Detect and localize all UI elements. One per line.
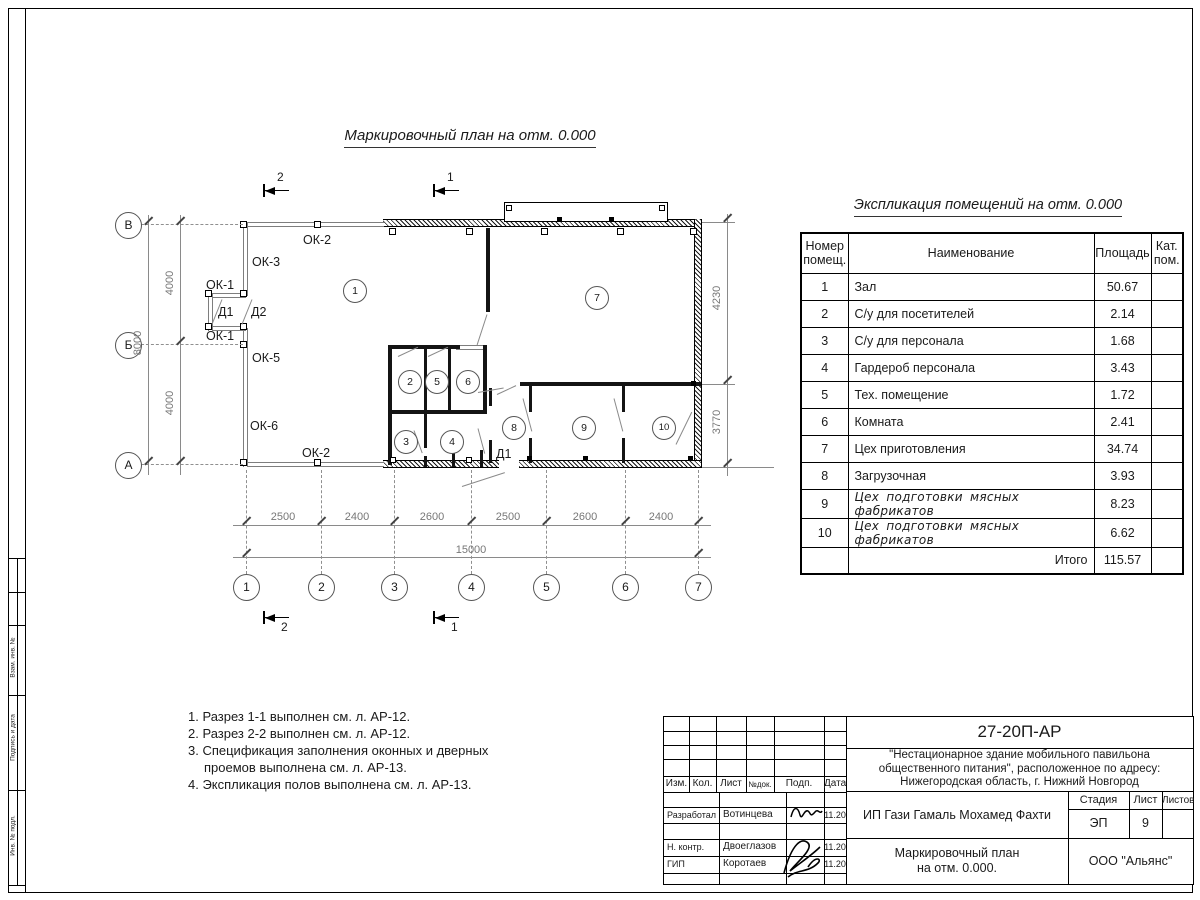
table-header-row: Номер помещ. Наименование Площадь Кат. п… (801, 233, 1183, 273)
room-num: 5 (801, 381, 848, 408)
room-cat (1151, 327, 1183, 354)
dimension-text: 2500 (478, 511, 538, 523)
notes: 1. Разрез 1-1 выполнен см. л. АР-12. 2. … (188, 708, 506, 793)
sheet-label: Лист (1129, 794, 1162, 806)
section-mark-1: 1 (433, 611, 473, 627)
tb-col-data: Дата (824, 778, 846, 789)
door-label: Д2 (251, 305, 266, 319)
room-area: 1.72 (1094, 381, 1151, 408)
room-area: 2.14 (1094, 300, 1151, 327)
room-name: Цех приготовления (848, 435, 1094, 462)
table-row: 1Зал50.67 (801, 273, 1183, 300)
window-label: ОК-6 (250, 419, 278, 433)
room-name: Зал (848, 273, 1094, 300)
extension-line (702, 467, 774, 468)
title-block: Изм. Кол. Лист №док. Подп. Дата Разработ… (663, 716, 1194, 885)
dimension-text: 2400 (327, 511, 387, 523)
stage-label: Стадия (1068, 794, 1129, 806)
partition (483, 345, 487, 412)
drawing-name: Маркировочный план на отм. 0.000. (846, 838, 1068, 884)
column-marker (389, 228, 396, 235)
platform-post (557, 217, 562, 221)
section-mark-1: 1 (433, 184, 473, 200)
room-area: 2.41 (1094, 408, 1151, 435)
section-arrow-icon (265, 187, 275, 195)
partition-room1-7 (486, 228, 490, 312)
glazed-wall-left (243, 222, 248, 296)
tb-name: Коротаев (723, 858, 766, 869)
room-num: 9 (801, 489, 848, 518)
grid-axis-line (141, 464, 243, 465)
room-name: Загрузочная (848, 462, 1094, 489)
room-number: 4 (440, 430, 464, 454)
dimension-text: 4000 (164, 381, 176, 425)
total-value: 115.57 (1094, 547, 1151, 574)
section-mark-2: 2 (263, 184, 303, 200)
dim-line (148, 215, 149, 475)
room-num: 1 (801, 273, 848, 300)
dimension-text: 4230 (711, 276, 723, 320)
room-cat (1151, 354, 1183, 381)
room-number: 9 (572, 416, 596, 440)
room-cat (1151, 381, 1183, 408)
side-stamp-line (8, 885, 25, 886)
room-num: 6 (801, 408, 848, 435)
section-mark-2: 2 (263, 611, 303, 627)
dim-line (180, 215, 181, 475)
table-title-text: Экспликация помещений на отм. 0.000 (854, 197, 1122, 217)
side-stamp-line (17, 558, 18, 885)
platform-post (609, 217, 614, 221)
frame-margin-line (25, 8, 26, 892)
window-label: ОК-1 (206, 329, 234, 343)
room-num: 2 (801, 300, 848, 327)
partition-stub (529, 386, 532, 412)
company-name: ООО "Альянс" (1068, 838, 1193, 884)
section-arrow-icon (435, 614, 445, 622)
total-label: Итого (848, 547, 1094, 574)
room-cat (1151, 518, 1183, 547)
column-marker (527, 456, 532, 461)
room-num: 10 (801, 518, 848, 547)
partition-rooms-8-10 (520, 382, 701, 386)
table-row: 7Цех приготовления34.74 (801, 435, 1183, 462)
note-line: 1. Разрез 1-1 выполнен см. л. АР-12. (188, 708, 506, 725)
room-cat (1151, 408, 1183, 435)
grid-column-bubble: 1 (233, 574, 260, 601)
dimension-text: 2400 (631, 511, 691, 523)
dimension-text: 3770 (711, 400, 723, 444)
room-cat (1151, 462, 1183, 489)
note-line: 4. Экспликация полов выполнена см. л. АР… (188, 776, 506, 793)
table-row: 5Тех. помещение1.72 (801, 381, 1183, 408)
column-marker (314, 459, 321, 466)
plan-title: Маркировочный план на отм. 0.000 (320, 127, 620, 144)
room-area: 6.62 (1094, 518, 1151, 547)
dimension-text: 2600 (555, 511, 615, 523)
dimension-text: 8000 (132, 321, 144, 365)
side-stamp-label: Подпись и дата (10, 706, 17, 770)
grid-row-bubble: А (115, 452, 142, 479)
table-row: 3С/у для персонала1.68 (801, 327, 1183, 354)
column-marker (583, 456, 588, 461)
signature-icon (778, 833, 828, 881)
project-description: "Нестационарное здание мобильного павиль… (848, 748, 1191, 791)
room-area: 3.43 (1094, 354, 1151, 381)
tb-role: Разработал (667, 810, 716, 820)
tb-col-ndok: №док. (746, 780, 774, 789)
door-label: Д1 (218, 305, 233, 319)
tb-col-kol: Кол. (689, 778, 716, 789)
col-header-category: Кат. пом. (1151, 233, 1183, 273)
room-name: С/у для персонала (848, 327, 1094, 354)
outer-wall-hatched-bottom (519, 460, 701, 468)
partition-stub (622, 438, 625, 463)
dimension-text: 2500 (253, 511, 313, 523)
grid-row-bubble: В (115, 212, 142, 239)
table-row: 10Цех подготовки мясных фабрикатов6.62 (801, 518, 1183, 547)
grid-column-bubble: 3 (381, 574, 408, 601)
col-header-area: Площадь (1094, 233, 1151, 273)
room-number: 1 (343, 279, 367, 303)
table-title: Экспликация помещений на отм. 0.000 (808, 197, 1168, 213)
table-row: 6Комната2.41 (801, 408, 1183, 435)
room-area: 1.68 (1094, 327, 1151, 354)
table-row: 8Загрузочная3.93 (801, 462, 1183, 489)
room-number: 8 (502, 416, 526, 440)
partition (424, 414, 427, 448)
column-marker (691, 381, 696, 386)
door-stub (424, 456, 427, 467)
room-cat (1151, 273, 1183, 300)
tb-role: ГИП (667, 859, 685, 869)
tb-role: Н. контр. (667, 842, 704, 852)
column-marker (390, 457, 396, 463)
room-number: 6 (456, 370, 480, 394)
note-line: 3. Спецификация заполнения оконных и две… (188, 742, 506, 776)
table-row: 9Цех подготовки мясных фабрикатов8.23 (801, 489, 1183, 518)
door-label: Д1 (496, 447, 511, 461)
dimension-text: 2600 (402, 511, 462, 523)
column-marker (690, 228, 697, 235)
sheets-label: Листов (1162, 795, 1193, 806)
col-header-number: Номер помещ. (801, 233, 848, 273)
column-marker (466, 457, 472, 463)
dim-line (727, 214, 728, 476)
window-label: ОК-2 (302, 446, 330, 460)
column-marker (541, 228, 548, 235)
room-name: Тех. помещение (848, 381, 1094, 408)
extension-line (702, 222, 735, 223)
tb-name: Вотинцева (723, 809, 773, 820)
table-row: 2С/у для посетителей2.14 (801, 300, 1183, 327)
tb-col-list: Лист (716, 778, 746, 789)
room-name: Цех подготовки мясных фабрикатов (848, 489, 1094, 518)
room-num: 7 (801, 435, 848, 462)
room-area: 3.93 (1094, 462, 1151, 489)
room-cat (1151, 435, 1183, 462)
column-marker (314, 221, 321, 228)
room-area: 50.67 (1094, 273, 1151, 300)
platform-post (506, 205, 512, 211)
extension-line (702, 384, 735, 385)
door-stub (480, 450, 483, 467)
platform-post (659, 205, 665, 211)
room-number: 5 (425, 370, 449, 394)
column-marker (688, 456, 693, 461)
room-number: 3 (394, 430, 418, 454)
room-cat (1151, 489, 1183, 518)
room6-window-partition (456, 345, 485, 350)
room-name: С/у для посетителей (848, 300, 1094, 327)
signature-icon (788, 803, 824, 823)
window-label: ОК-2 (303, 233, 331, 247)
dim-line (233, 557, 711, 558)
col-header-name: Наименование (848, 233, 1094, 273)
dim-line (233, 525, 711, 526)
grid-column-bubble: 4 (458, 574, 485, 601)
room-area: 34.74 (1094, 435, 1151, 462)
room-name: Гардероб персонала (848, 354, 1094, 381)
grid-column-bubble: 6 (612, 574, 639, 601)
side-stamp-label: Инв. № подл. (10, 804, 17, 868)
section-arrow-icon (265, 614, 275, 622)
room-cat (1151, 300, 1183, 327)
dimension-text: 4000 (164, 261, 176, 305)
room-num: 8 (801, 462, 848, 489)
stage-value: ЭП (1068, 816, 1129, 830)
room-number: 7 (585, 286, 609, 310)
grid-axis-line (141, 224, 243, 225)
tb-name: Двоеглазов (723, 841, 776, 852)
grid-column-bubble: 2 (308, 574, 335, 601)
grid-column-bubble: 7 (685, 574, 712, 601)
column-marker (617, 228, 624, 235)
room-name: Цех подготовки мясных фабрикатов (848, 518, 1094, 547)
room-num: 4 (801, 354, 848, 381)
glazed-wall-left (243, 328, 248, 467)
sheet: Маркировочный план на отм. 0.000 Эксплик… (0, 0, 1200, 900)
plan-title-text: Маркировочный план на отм. 0.000 (344, 127, 595, 148)
partition-stub (622, 386, 625, 412)
room-name: Комната (848, 408, 1094, 435)
window-label: ОК-1 (206, 278, 234, 292)
partition (388, 410, 487, 414)
partition (388, 345, 392, 465)
client-name: ИП Гази Гамаль Мохамед Фахти (846, 791, 1068, 838)
room-number: 2 (398, 370, 422, 394)
room-schedule-table: Номер помещ. Наименование Площадь Кат. п… (800, 232, 1184, 575)
room-number: 10 (652, 416, 676, 440)
grid-axis-line (141, 344, 243, 345)
tb-col-izm: Изм. (664, 778, 689, 789)
table-total-row: Итого115.57 (801, 547, 1183, 574)
grid-column-bubble: 5 (533, 574, 560, 601)
tb-date: 11.20 (824, 810, 846, 820)
room-num: 3 (801, 327, 848, 354)
room-area: 8.23 (1094, 489, 1151, 518)
side-stamp-label: Взам. инв. № (10, 626, 17, 690)
window-label: ОК-5 (252, 351, 280, 365)
partition-stub (489, 440, 492, 463)
note-line: 2. Разрез 2-2 выполнен см. л. АР-12. (188, 725, 506, 742)
doc-number: 27-20П-АР (846, 722, 1193, 742)
sheet-value: 9 (1129, 816, 1162, 830)
column-marker (240, 290, 247, 297)
table-row: 4Гардероб персонала3.43 (801, 354, 1183, 381)
column-marker (466, 228, 473, 235)
loading-platform (504, 202, 668, 222)
window-label: ОК-3 (252, 255, 280, 269)
outer-wall-hatched-right (694, 219, 702, 468)
dimension-text: 15000 (441, 544, 501, 556)
section-arrow-icon (435, 187, 445, 195)
tb-col-podp: Подп. (774, 778, 824, 789)
